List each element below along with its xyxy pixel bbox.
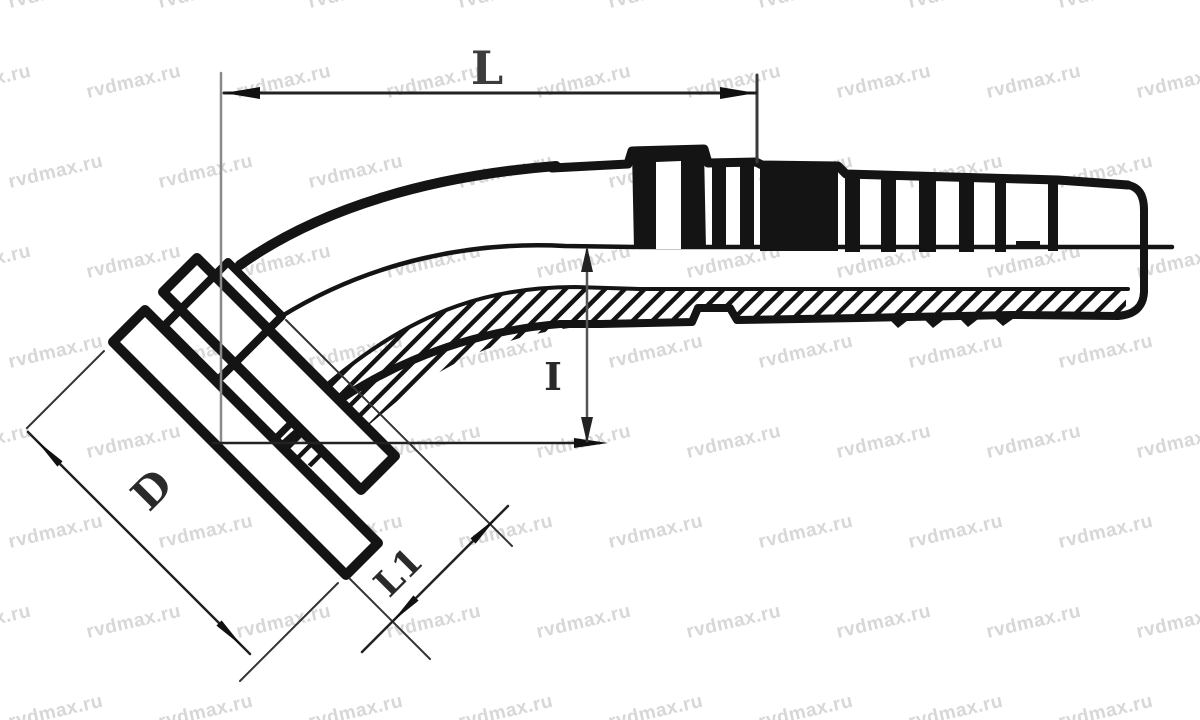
watermark-text: rvdmax.ru [0, 61, 33, 103]
watermark-text: rvdmax.ru [606, 511, 705, 553]
watermark-text: rvdmax.ru [1056, 691, 1155, 720]
watermark-text: rvdmax.ru [6, 511, 105, 553]
watermark-text: rvdmax.ru [1056, 511, 1155, 553]
d-dimension-label: D [122, 460, 182, 520]
watermark-text: rvdmax.ru [534, 61, 633, 103]
watermark-text: rvdmax.ru [984, 61, 1083, 103]
watermark-text: rvdmax.ru [84, 241, 183, 283]
watermark-text: rvdmax.ru [84, 601, 183, 643]
watermark-text: rvdmax.ru [156, 151, 255, 193]
watermark-text: rvdmax.ru [1134, 61, 1200, 103]
watermark-text: rvdmax.ru [6, 151, 105, 193]
watermark-text: rvdmax.ru [384, 601, 483, 643]
watermark-text: rvdmax.ru [0, 241, 33, 283]
fitting-diagram: rvdmax.rurvdmax.rurvdmax.rurvdmax.rurvdm… [0, 0, 1200, 720]
watermark-text: rvdmax.ru [156, 0, 255, 13]
d-arrow-top [36, 440, 63, 467]
watermark-text: rvdmax.ru [756, 511, 855, 553]
watermark-text: rvdmax.ru [156, 511, 255, 553]
technical-drawing-canvas: rvdmax.rurvdmax.rurvdmax.rurvdmax.rurvdm… [0, 0, 1200, 720]
watermark-text: rvdmax.ru [84, 421, 183, 463]
watermark-text: rvdmax.ru [306, 691, 405, 720]
watermark-text: rvdmax.ru [6, 331, 105, 373]
watermark-text: rvdmax.ru [6, 0, 105, 13]
watermark-text: rvdmax.ru [606, 331, 705, 373]
watermark-text: rvdmax.ru [606, 0, 705, 13]
watermark-text: rvdmax.ru [756, 691, 855, 720]
watermark-text: rvdmax.ru [906, 511, 1005, 553]
l-dimension-label: L [471, 41, 503, 95]
watermark-text: rvdmax.ru [306, 0, 405, 13]
watermark-text: rvdmax.ru [684, 601, 783, 643]
crimp-collar-slot [656, 161, 681, 249]
watermark-text: rvdmax.ru [306, 151, 405, 193]
watermark-text: rvdmax.ru [1056, 331, 1155, 373]
i-dimension-label: I [544, 354, 562, 399]
watermark-text: rvdmax.ru [456, 0, 555, 13]
watermark-text: rvdmax.ru [606, 691, 705, 720]
watermark-text: rvdmax.ru [756, 0, 855, 13]
watermark-text: rvdmax.ru [1056, 0, 1155, 13]
watermark-text: rvdmax.ru [834, 601, 933, 643]
watermark-text: rvdmax.ru [834, 61, 933, 103]
watermark-text: rvdmax.ru [456, 691, 555, 720]
watermark-text: rvdmax.ru [456, 511, 555, 553]
tip-shoulder-bar [1048, 179, 1058, 251]
watermark-text: rvdmax.ru [906, 331, 1005, 373]
watermark-text: rvdmax.ru [84, 61, 183, 103]
watermark-text: rvdmax.ru [756, 331, 855, 373]
solid-black-band [760, 163, 838, 251]
watermark-text: rvdmax.ru [384, 241, 483, 283]
watermark-text: rvdmax.ru [384, 61, 483, 103]
watermark-text: rvdmax.ru [984, 601, 1083, 643]
watermark-text: rvdmax.ru [1134, 601, 1200, 643]
watermark-text: rvdmax.ru [0, 601, 33, 643]
watermark-text: rvdmax.ru [834, 421, 933, 463]
watermark-text: rvdmax.ru [906, 691, 1005, 720]
watermark-text: rvdmax.ru [156, 691, 255, 720]
watermark-text: rvdmax.ru [534, 601, 633, 643]
watermark-text: rvdmax.ru [6, 691, 105, 720]
watermark-text: rvdmax.ru [984, 421, 1083, 463]
watermark-text: rvdmax.ru [906, 0, 1005, 13]
watermark-text: rvdmax.ru [684, 421, 783, 463]
centerline-dash [1016, 241, 1040, 249]
watermark-text: rvdmax.ru [1134, 421, 1200, 463]
